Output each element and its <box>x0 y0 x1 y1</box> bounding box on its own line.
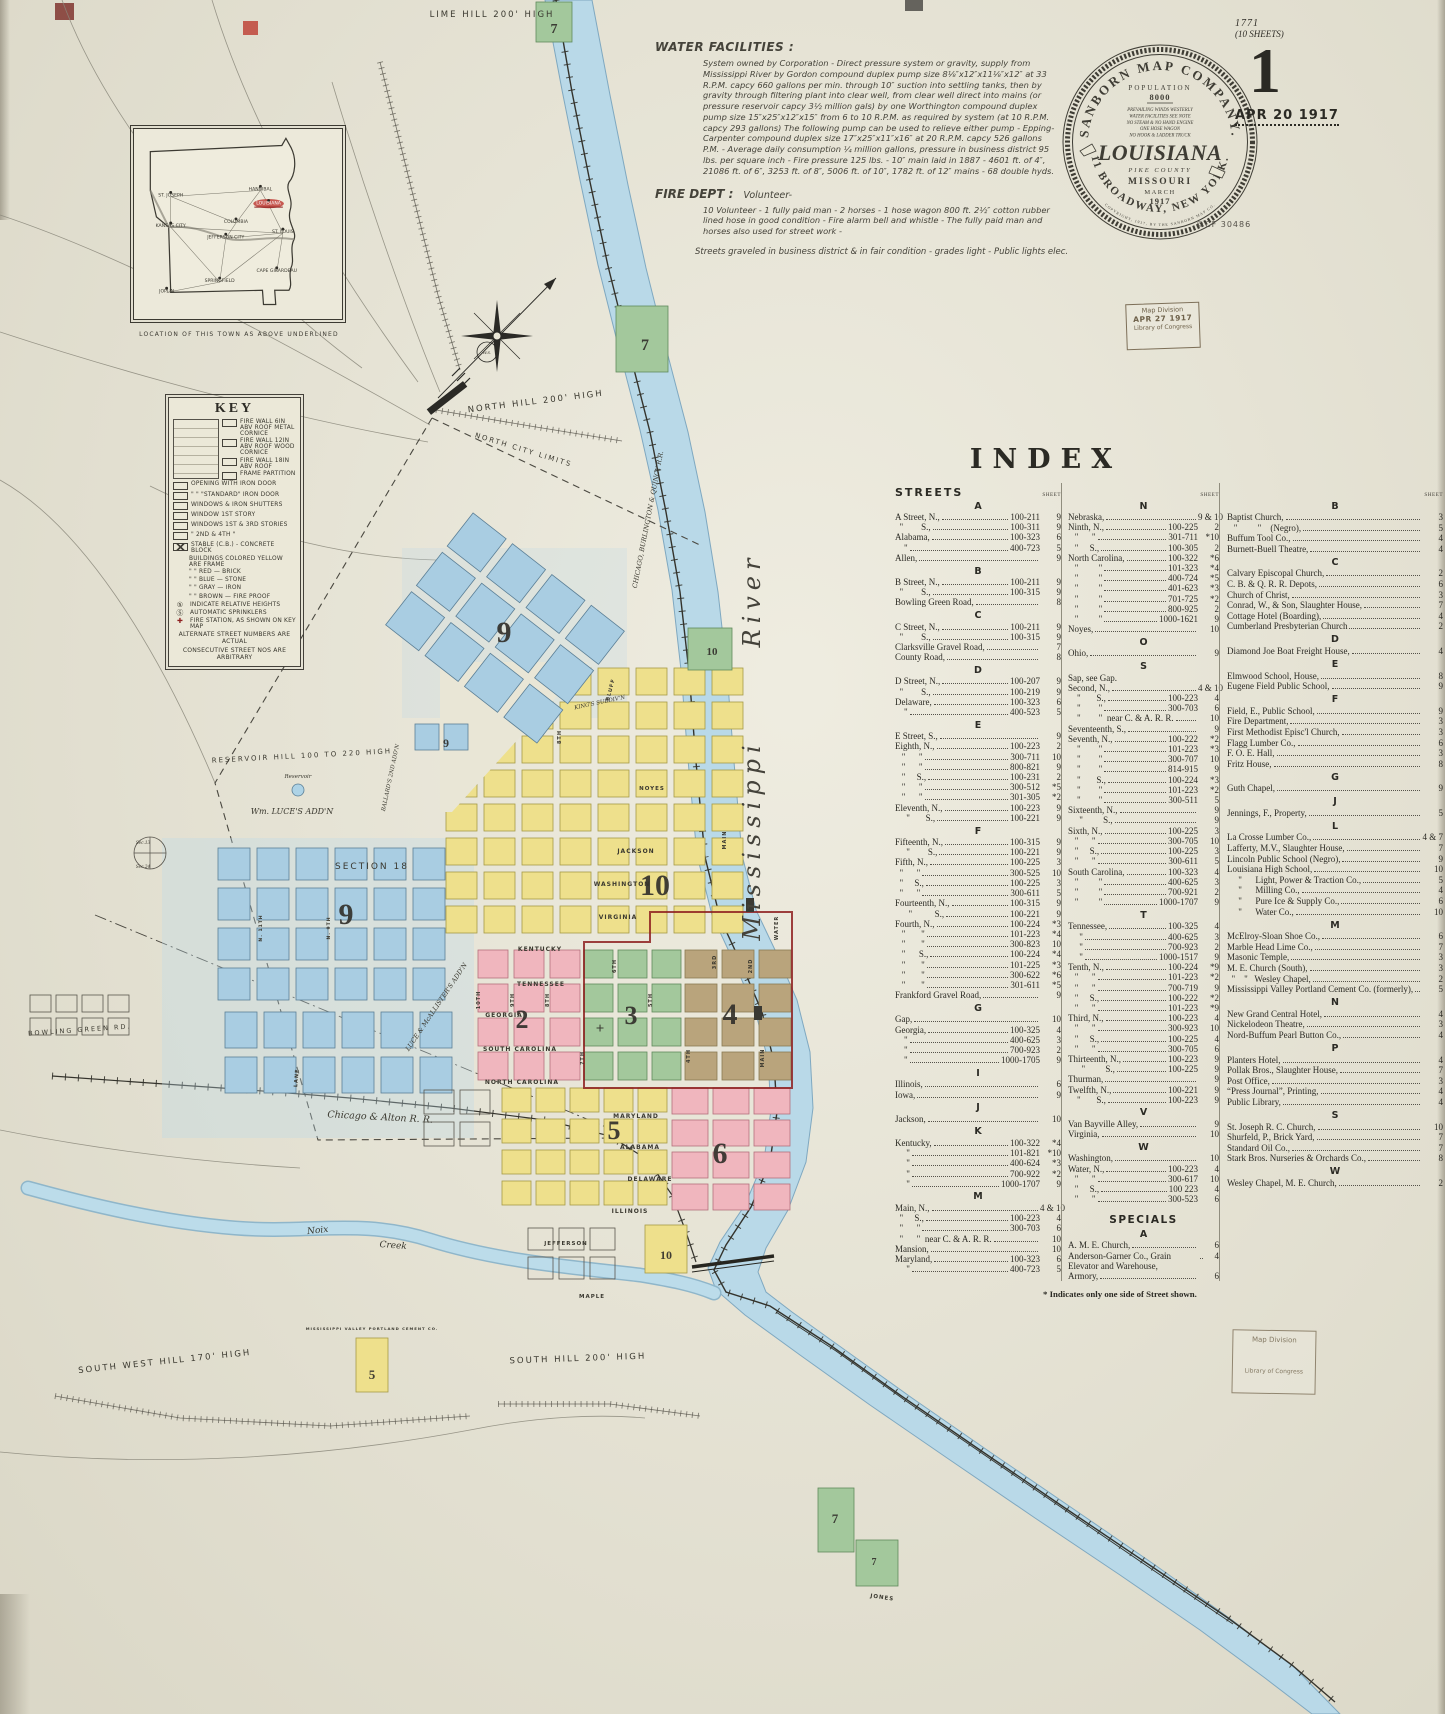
city-block <box>674 804 705 831</box>
index-row: Church of Christ,3 <box>1227 590 1443 601</box>
index-row: " "700-9212 <box>1068 887 1219 897</box>
city-block <box>712 668 743 695</box>
index-row: " "101-223*9 <box>1068 1003 1219 1013</box>
city-block <box>296 848 328 880</box>
index-row: Fritz House,8 <box>1227 759 1443 770</box>
index-row: " "700-7199 <box>1068 983 1219 993</box>
index-row: Water, N.,100-2234 <box>1068 1164 1219 1174</box>
city-block <box>560 838 591 865</box>
city-block <box>560 736 591 763</box>
index-row: "400-6253 <box>895 1035 1061 1045</box>
scale-bar <box>427 381 468 415</box>
city-block <box>381 1057 413 1093</box>
district-7-patch <box>856 1540 898 1586</box>
district-number: 2 <box>516 1005 529 1034</box>
city-block <box>550 1052 580 1080</box>
key-symbol-icon <box>222 458 237 466</box>
index-row: Fifteenth, N.,100-3159 <box>895 837 1061 847</box>
index-row: "400-7235 <box>895 543 1061 553</box>
map-label: SOUTH WEST HILL 170' HIGH <box>78 1348 252 1376</box>
inset-city-label: ST. JOSEPH <box>158 192 183 198</box>
index-row: " S.,100-2253 <box>895 878 1061 888</box>
index-row: Maryland,100-3236 <box>895 1254 1061 1264</box>
city-block <box>484 872 515 899</box>
index-row: Nebraska,9 & 10 <box>1068 512 1219 522</box>
index-row: "400-7235 <box>895 1264 1061 1274</box>
index-section-letter: J <box>895 1102 1061 1113</box>
key-symbol-icon <box>173 502 188 510</box>
key-item-label: " " BLUE — STONE <box>189 577 246 583</box>
index-row: Tenth, N.,100-224*9 <box>1068 962 1219 972</box>
key-item: " " GRAY — IRON <box>173 585 296 592</box>
index-section-letter: W <box>1068 1142 1219 1153</box>
index-section-letter: L <box>1227 821 1443 832</box>
index-row: Cottage Hotel (Boarding),4 <box>1227 611 1443 622</box>
index-row: M. E. Church (South),3 <box>1227 963 1443 974</box>
city-block <box>570 1088 599 1112</box>
map-label: TENNESSEE <box>517 981 565 988</box>
notes-block: WATER FACILITIES : System owned by Corpo… <box>655 40 1100 257</box>
key-symbol-icon <box>173 578 186 584</box>
index-row: " S.,9 <box>1068 815 1219 825</box>
map-label: RESERVOIR HILL 100 TO 220 HIGH <box>212 747 393 764</box>
index-row: " Pure Ice & Supply Co.,6 <box>1227 896 1443 907</box>
index-row: " " Wesley Chapel,2 <box>1227 974 1443 985</box>
index-row: McElroy-Sloan Shoe Co.,6 <box>1227 931 1443 942</box>
sheet-number: 1 <box>1249 41 1415 102</box>
city-block <box>672 1184 708 1210</box>
city-block <box>674 872 705 899</box>
key-item-label: " " GRAY — IRON <box>189 585 241 591</box>
inset-city-label: ST. LOUIS <box>272 229 294 235</box>
city-block <box>713 1184 749 1210</box>
key-title: KEY <box>173 401 296 417</box>
seal-fact: PREVAILING WINDS WESTERLY <box>1126 108 1194 113</box>
index-section-letter: P <box>1227 1043 1443 1054</box>
key-note: CONSECUTIVE STREET NOS ARE ARBITRARY <box>173 647 296 661</box>
index-row: Van Bayville Alley,9 <box>1068 1119 1219 1129</box>
key-symbol-icon <box>222 419 237 427</box>
index-row: Tennessee,100-3254 <box>1068 921 1219 931</box>
index-row: " S.,100-2219 <box>895 847 1061 857</box>
index-row: " "800-8219 <box>895 762 1061 772</box>
map-label: MAIN <box>722 831 728 850</box>
city-block <box>536 1119 565 1143</box>
index-footnote: * Indicates only one side of Street show… <box>1043 1289 1443 1299</box>
map-label: Sec.24 <box>136 864 151 869</box>
index-row: "700-9232 <box>895 1045 1061 1055</box>
city-block <box>514 1052 544 1080</box>
city-block <box>536 1088 565 1112</box>
city-block <box>570 1181 599 1205</box>
seal-county: PIKE COUNTY <box>1127 167 1191 174</box>
key-item-label: FIRE WALL 18IN ABV ROOF <box>240 458 296 470</box>
index-row: Lincoln Public School (Negro),9 <box>1227 854 1443 865</box>
index-row: " S.,100-2234 <box>895 1213 1061 1223</box>
index-row: " "101-223*2 <box>1068 972 1219 982</box>
index-row: New Grand Central Hotel,4 <box>1227 1009 1443 1020</box>
key-symbol-icon <box>173 512 188 520</box>
index-row: "1000-17059 <box>895 1055 1061 1065</box>
district-number: 10 <box>707 646 719 658</box>
city-block <box>502 1119 531 1143</box>
index-row: " S.,100-3159 <box>895 587 1061 597</box>
index-row: Wesley Chapel, M. E. Church,2 <box>1227 1178 1443 1189</box>
city-block <box>754 1088 790 1114</box>
index-row: " S.,100-224*3 <box>1068 775 1219 785</box>
city-block <box>225 1057 257 1093</box>
map-label: MISSISSIPPI VALLEY PORTLAND CEMENT CO. <box>306 1326 439 1331</box>
index-row: Lafferty, M.V., Slaughter House,7 <box>1227 843 1443 854</box>
date-stamp: APR 20 1917 <box>1235 108 1339 126</box>
map-label: NORTH CAROLINA <box>485 1079 559 1086</box>
city-block <box>672 1120 708 1146</box>
index-row: Iowa,9 <box>895 1090 1061 1100</box>
index-row: " "301-711*10 <box>1068 532 1219 542</box>
city-block <box>303 1012 335 1048</box>
index-row: " "301-305*2 <box>895 792 1061 802</box>
index-row: " "300-6115 <box>895 888 1061 898</box>
index-section-letter: S <box>1068 661 1219 672</box>
city-block <box>342 1012 374 1048</box>
sheet-header: SHEET <box>1200 492 1219 498</box>
index-row: C. B. & Q. R. R. Depots,6 <box>1227 579 1443 590</box>
city-block <box>638 1150 667 1174</box>
index-row: Post Office,3 <box>1227 1076 1443 1087</box>
district-number: 9 <box>497 616 512 649</box>
seal-year: 1917 <box>1150 196 1171 206</box>
city-block <box>218 928 250 960</box>
inset-city-label: COLUMBIA <box>224 219 249 225</box>
index-row: Washington,10 <box>1068 1153 1219 1163</box>
index-row: Frankford Gravel Road,9 <box>895 990 1061 1000</box>
index-row: "400-624*3 <box>895 1158 1061 1168</box>
city-block <box>713 1088 749 1114</box>
seal-city: LOUISIANA <box>1097 140 1222 165</box>
key-symbol-icon <box>222 472 237 480</box>
stamp-line: Library of Congress <box>1233 1367 1315 1375</box>
key-item-label: WINDOWS 1ST & 3RD STORIES <box>191 522 288 528</box>
index-section-letter: K <box>895 1126 1061 1137</box>
index-row: " "300-5115 <box>1068 795 1219 805</box>
key-item: WINDOWS 1ST & 3RD STORIES <box>173 522 296 531</box>
index-section-letter: A <box>1068 1229 1219 1240</box>
index-row: " "800-9252 <box>1068 604 1219 614</box>
key-item: FIRE WALL 12IN ABV ROOF WOOD CORNICE <box>222 438 296 456</box>
index-row: F. O. E. Hall,3 <box>1227 748 1443 759</box>
key-item: WINDOW 1ST STORY <box>173 512 296 521</box>
index-row: Baptist Church,3 <box>1227 512 1443 523</box>
city-block <box>598 804 629 831</box>
index-row: A. M. E. Church,6 <box>1068 1240 1219 1250</box>
index-row: E Street, S.,9 <box>895 731 1061 741</box>
map-label: JONES <box>869 1593 895 1602</box>
key-item-label: WINDOW 1ST STORY <box>191 512 255 518</box>
index-section-letter: N <box>1227 997 1443 1008</box>
index-row: Clarksville Gravel Road,7 <box>895 642 1061 652</box>
index-row: Shurfeld, P., Brick Yard,7 <box>1227 1132 1443 1143</box>
city-block <box>560 872 591 899</box>
index-row: Georgia,100-3254 <box>895 1025 1061 1035</box>
index-row: Allen,9 <box>895 553 1061 563</box>
key-item: BUILDINGS COLORED YELLOW ARE FRAME <box>173 556 296 568</box>
map-label: W.S. <box>483 350 492 355</box>
key-item: ⑤INDICATE RELATIVE HEIGHTS <box>173 602 296 609</box>
key-item-label: " " BROWN — FIRE PROOF <box>189 594 270 600</box>
city-block <box>502 1150 531 1174</box>
city-block <box>722 1052 754 1080</box>
fire-dept-body: 10 Volunteer - 1 fully paid man - 2 hors… <box>703 205 1055 237</box>
city-block <box>342 1057 374 1093</box>
key-symbol-icon <box>173 522 188 530</box>
city-block <box>636 668 667 695</box>
sheet-number-block: 1771 (10 SHEETS) 1 APR 20 1917 <box>1235 18 1415 126</box>
key-symbol-icon: ✚ <box>173 618 187 624</box>
index-row: " " near C. & A. R. R.10 <box>895 1234 1061 1244</box>
index-row: Calvary Episcopal Church,2 <box>1227 568 1443 579</box>
index-row: Seventeenth, S.,9 <box>1068 724 1219 734</box>
sanborn-map-sheet: LIME HILL 200' HIGHNORTH HILL 200' HIGHN… <box>0 0 1445 1714</box>
index-row: Louisiana High School,10 <box>1227 864 1443 875</box>
map-label: 8TH <box>545 993 551 1007</box>
index-row: "400-6253 <box>1068 932 1219 942</box>
map-label: JACKSON <box>616 848 654 855</box>
index-section-letter: B <box>895 566 1061 577</box>
city-block <box>550 984 580 1012</box>
map-label: 4TH <box>686 1049 692 1063</box>
index-row: " "300-512*5 <box>895 782 1061 792</box>
map-label: JEFFERSON <box>543 1241 588 1247</box>
index-row: La Crosse Lumber Co.,4 & 7 <box>1227 832 1443 843</box>
sheet-header: SHEET <box>1042 492 1061 498</box>
index-row: " S.,100-2219 <box>895 909 1061 919</box>
map-label: Wm. LUCE'S ADD'N <box>251 807 335 816</box>
map-label: 10TH <box>476 991 482 1010</box>
index-section-letter: C <box>1227 557 1443 568</box>
city-block <box>598 702 629 729</box>
key-symbol-icon: Ⓢ <box>173 610 187 616</box>
city-block <box>522 838 553 865</box>
district-number: 3 <box>625 1001 638 1030</box>
index-row: " "301-611*5 <box>895 980 1061 990</box>
compass-rose <box>438 278 556 398</box>
district-number: 6 <box>713 1137 728 1170</box>
key-item-label: " " "STANDARD" IRON DOOR <box>191 492 279 498</box>
series-number: 1771 <box>1235 18 1415 29</box>
index-row: Sixteenth, N.,9 <box>1068 805 1219 815</box>
key-symbol-icon <box>173 594 186 600</box>
index-row: Second, N.,4 & 10 <box>1068 683 1219 693</box>
index-row: "700-9232 <box>1068 942 1219 952</box>
index-row: Burnett-Buell Theatre,4 <box>1227 544 1443 555</box>
index-row: " "101-223*3 <box>1068 744 1219 754</box>
seal-month: MARCH <box>1144 189 1175 196</box>
city-block <box>636 906 667 933</box>
city-block <box>257 848 289 880</box>
inset-city-label: JEFFERSON CITY <box>206 234 244 240</box>
city-block <box>560 906 591 933</box>
district-number: 7 <box>641 337 649 354</box>
index-row: Ninth, N.,100-2252 <box>1068 522 1219 532</box>
key-item: STABLE (C.B.) - CONCRETE BLOCK <box>173 542 296 554</box>
city-block <box>374 968 406 1000</box>
city-block <box>672 1088 708 1114</box>
city-block <box>522 770 553 797</box>
index-row: " "300-52510 <box>895 868 1061 878</box>
index-section-letter: T <box>1068 910 1219 921</box>
city-block <box>598 770 629 797</box>
key-item-label: FRAME PARTITION <box>240 471 296 477</box>
compass-feather <box>452 368 460 376</box>
city-block <box>759 1018 791 1046</box>
index-row: Eugene Field Public School,9 <box>1227 681 1443 692</box>
seal-graphic: SANBORN MAP COMPANY.11 BROADWAY, NEW YOR… <box>1058 40 1262 244</box>
index-row: " "101-223*4 <box>895 929 1061 939</box>
streets-header: STREETS <box>895 486 963 499</box>
seal-population-label: POPULATION <box>1128 84 1191 92</box>
city-block <box>82 995 103 1012</box>
city-block <box>712 702 743 729</box>
index-row: " S.,100-2253 <box>1068 846 1219 856</box>
map-label: NORTH CITY LIMITS <box>474 431 573 468</box>
key-symbol-icon <box>173 570 186 576</box>
district-number: 9 <box>339 898 354 931</box>
missouri-inset-map: ST. JOSEPHKANSAS CITYHANNIBALLOUISIANACO… <box>133 128 343 320</box>
index-column-streets-2: SHEET NNebraska,9 & 10Ninth, N.,100-2252… <box>1061 483 1219 1281</box>
sheet-header: SHEET <box>1424 492 1443 498</box>
index-row: "400-5235 <box>895 707 1061 717</box>
index-section-letter: D <box>895 665 1061 676</box>
index-section-letter: W <box>1227 1166 1443 1177</box>
water-facilities-body: System owned by Corporation - Direct pre… <box>703 58 1055 177</box>
index-row: Gap,10 <box>895 1014 1061 1024</box>
index-row: Masonic Temple,3 <box>1227 952 1443 963</box>
city-block <box>652 1018 681 1046</box>
city-block <box>225 1012 257 1048</box>
index-row: Thirteenth, N.,100-2239 <box>1068 1054 1219 1064</box>
index-row: Fifth, N.,100-2253 <box>895 857 1061 867</box>
index-row: " " (Negro),5 <box>1227 523 1443 534</box>
city-block <box>374 888 406 920</box>
city-block <box>218 888 250 920</box>
city-block <box>638 1181 667 1205</box>
map-label: ALABAMA <box>620 1144 660 1151</box>
index-row: Fourth, N.,100-224*3 <box>895 919 1061 929</box>
city-block <box>413 928 445 960</box>
index-row: Thurman,9 <box>1068 1074 1219 1084</box>
index-row: " "814-9159 <box>1068 764 1219 774</box>
streets-note: Streets graveled in business district & … <box>695 247 1085 257</box>
city-block <box>570 1119 599 1143</box>
city-block <box>560 804 591 831</box>
city-block <box>759 984 791 1012</box>
city-block <box>604 1088 633 1112</box>
index-row: " " near C. & A. R. R.10 <box>1068 713 1219 723</box>
district-number: 5 <box>369 1367 376 1382</box>
city-block <box>685 1018 717 1046</box>
index-row: " S.,100-2254 <box>1068 1034 1219 1044</box>
index-row: " "300-5236 <box>1068 1194 1219 1204</box>
key-symbol-icon <box>173 586 186 592</box>
city-block <box>374 928 406 960</box>
index-row: Cumberland Presbyterian Church2 <box>1227 621 1443 632</box>
index-row: " S.,100-3159 <box>895 632 1061 642</box>
map-label: Creek <box>379 1240 407 1252</box>
compass-hub <box>493 332 501 340</box>
city-block <box>514 950 544 978</box>
key-item-label: " " RED — BRICK <box>189 569 241 575</box>
city-block <box>484 804 515 831</box>
key-item-label: STABLE (C.B.) - CONCRETE BLOCK <box>191 542 296 554</box>
index-row: " Water Co.,10 <box>1227 907 1443 918</box>
library-stamp-top: Map Division APR 27 1917 Library of Cong… <box>1125 302 1201 351</box>
southwest-hill-hachure <box>55 1396 470 1426</box>
city-block <box>536 1181 565 1205</box>
index-section-letter: O <box>1068 637 1219 648</box>
index-row: Mansion,10 <box>895 1244 1061 1254</box>
index-row: " S.,100-3119 <box>895 522 1061 532</box>
city-block <box>264 1057 296 1093</box>
key-symbol-icon <box>173 543 188 551</box>
index-row: Pollak Bros., Slaughter House,7 <box>1227 1065 1443 1076</box>
key-symbol-icon <box>173 532 188 540</box>
city-block <box>672 1152 708 1178</box>
index-row: First Methodist Episc'l Church,3 <box>1227 727 1443 738</box>
index-row: Planters Hotel,4 <box>1227 1055 1443 1066</box>
index-row: " "300-7056 <box>1068 1044 1219 1054</box>
city-block <box>674 736 705 763</box>
key-item-label: INDICATE RELATIVE HEIGHTS <box>190 602 280 608</box>
key-item-label: FIRE WALL 6IN ABV ROOF METAL CORNICE <box>240 419 296 437</box>
key-item-label: FIRE STATION, AS SHOWN ON KEY MAP <box>190 618 296 630</box>
city-block <box>638 1088 667 1112</box>
city-block <box>296 888 328 920</box>
fire-dept-title: FIRE DEPT :Volunteer- <box>655 187 1100 201</box>
index-row: " "1000-17079 <box>1068 897 1219 907</box>
index-section-letter: I <box>895 1068 1061 1079</box>
index-row: "1000-17079 <box>895 1179 1061 1189</box>
city-block <box>502 1088 531 1112</box>
index-row: Conrad, W., & Son, Slaughter House,7 <box>1227 600 1443 611</box>
city-block <box>536 1150 565 1174</box>
city-block <box>264 1012 296 1048</box>
city-block <box>413 848 445 880</box>
city-block <box>598 736 629 763</box>
map-label: NOYES <box>639 786 665 792</box>
seal-fact: WATER FACILITIES SEE NOTE <box>1129 114 1191 119</box>
key-item-label: " 2ND & 4TH " <box>191 532 236 538</box>
index-row: " Light, Power & Traction Co.,5 <box>1227 875 1443 886</box>
city-block <box>108 995 129 1012</box>
fire-dept-subtitle: Volunteer- <box>743 190 792 201</box>
city-block <box>484 838 515 865</box>
index-row: Armory,6 <box>1068 1271 1219 1281</box>
index-row: " "300-7036 <box>1068 703 1219 713</box>
index-row: Seventh, N.,100-222*2 <box>1068 734 1219 744</box>
city-block <box>484 906 515 933</box>
index-row: Flagg Lumber Co.,6 <box>1227 738 1443 749</box>
city-block <box>296 968 328 1000</box>
map-label: ILLINOIS <box>612 1208 649 1215</box>
index-section-letter: M <box>1227 920 1443 931</box>
seal-ribbon <box>1080 144 1096 156</box>
reservoir <box>292 784 304 796</box>
key-symbol-icon <box>173 556 186 562</box>
index-column-streets-1: STREETSSHEET AA Street, N.,100-2119 " S.… <box>895 483 1061 1281</box>
city-block <box>56 995 77 1012</box>
inset-city-label: KANSAS CITY <box>156 223 186 229</box>
city-block <box>560 770 591 797</box>
